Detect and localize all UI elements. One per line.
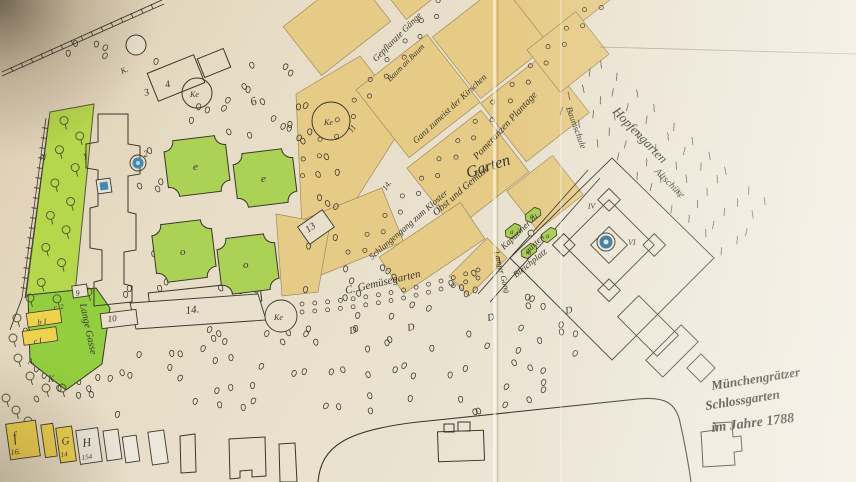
bed-letter-a: a bbox=[510, 228, 514, 236]
plot-label-c2: c. 2 bbox=[53, 303, 65, 312]
parterre-letter: o bbox=[180, 246, 186, 258]
number-14-band: 14. bbox=[185, 303, 200, 317]
parterre-letter: e bbox=[261, 173, 266, 185]
parterre-letter: o bbox=[243, 259, 249, 271]
fold-crease bbox=[493, 0, 496, 482]
plot-label-b1: b I bbox=[37, 317, 47, 327]
corner-shadow bbox=[0, 352, 160, 482]
scanned-map-photo: Gepflanzte Gänge Baum an Baum Ganz zumei… bbox=[0, 0, 856, 482]
plot-label-c1: c I bbox=[33, 336, 43, 346]
fold-crease-shadow bbox=[497, 0, 498, 482]
corner-shadow bbox=[0, 0, 260, 200]
map-canvas: Gepflanzte Gänge Baum an Baum Ganz zumei… bbox=[0, 0, 856, 482]
circle-ke3: Ke bbox=[273, 313, 283, 322]
number-10: 10 bbox=[107, 313, 118, 324]
fold-crease-2 bbox=[560, 0, 562, 482]
circle-ke2: Ke bbox=[323, 118, 333, 127]
